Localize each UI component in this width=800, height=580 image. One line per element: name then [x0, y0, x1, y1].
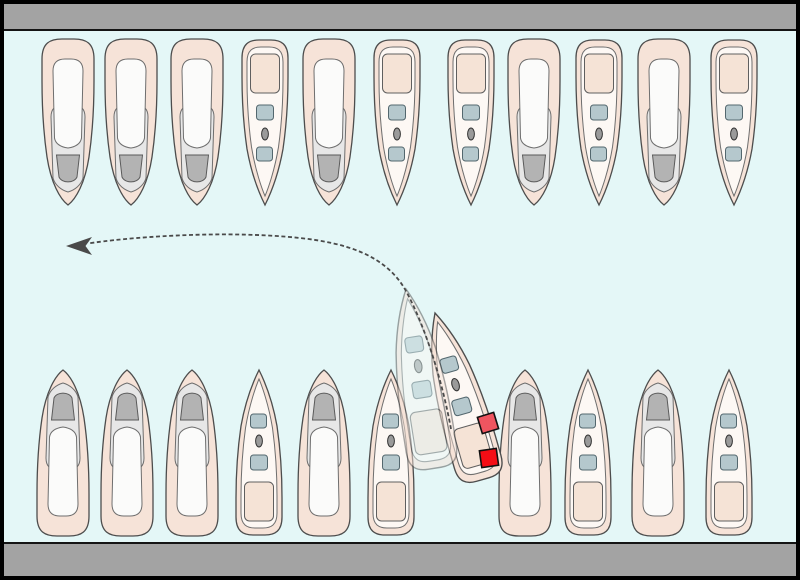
- fender-marker-2: [479, 448, 498, 467]
- fender-marker-1: [477, 412, 498, 433]
- bottom-dock: [2, 543, 798, 577]
- top-dock: [2, 2, 798, 30]
- marina-scene-svg: [0, 0, 800, 580]
- marina-docking-diagram: [0, 0, 800, 580]
